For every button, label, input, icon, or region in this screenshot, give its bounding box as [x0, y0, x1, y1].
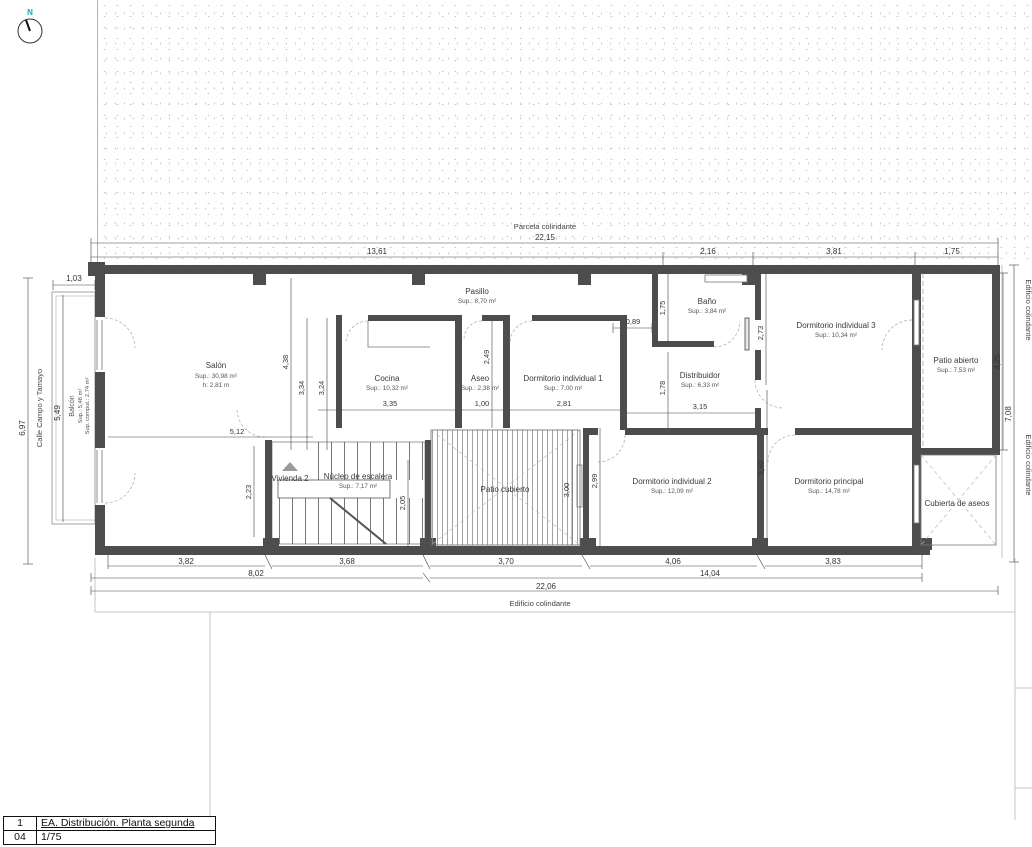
dim-top-2: 2,16 [700, 247, 716, 256]
room-area-balcon: Sup.: 5,48 m² [78, 389, 84, 424]
dim-bottom-sub-2: 14,04 [700, 569, 721, 578]
dim-cocina-w: 3,35 [383, 399, 397, 408]
dim-v273: 2,73 [756, 326, 765, 340]
room-label-distribuidor: Distribuidor [680, 371, 721, 380]
room-area-dormitorio1: Sup.: 7,00 m² [544, 385, 582, 392]
dim-left-2: 6,97 [18, 420, 27, 436]
label-edificio-colindante-bottom: Edificio colindante [509, 599, 570, 608]
room-label-dormitorio2: Dormitorio individual 2 [632, 477, 712, 486]
dim-right-1: 4,25 [993, 354, 1002, 370]
room-area-salon: Sup.: 30,98 m² [195, 373, 237, 380]
room-area-cocina: Sup.: 10,32 m² [366, 385, 408, 392]
room-label-principal: Dormitorio principal [795, 477, 864, 486]
dim-top-overall: 22,15 [535, 233, 556, 242]
room-label-pasillo: Pasillo [465, 287, 489, 296]
dim-top-1: 13,61 [367, 247, 388, 256]
dim-bottom-3: 3,70 [498, 557, 514, 566]
room-label-nucleo: Núcleo de escalera [324, 472, 393, 481]
dim-v324: 3,24 [317, 381, 326, 395]
label-parcela-colindante: Parcela colindante [514, 222, 576, 231]
dim-v249: 2,49 [482, 350, 491, 364]
entry-marker-icon [282, 462, 298, 471]
dim-v389: 3,89 [757, 461, 766, 475]
room-area-bano: Sup.: 3,84 m² [688, 308, 726, 315]
room-label-patio-cubierto: Patio cubierto [481, 485, 530, 494]
room-area-principal: Sup.: 14,78 m² [808, 488, 850, 495]
room-label-bano: Baño [698, 297, 717, 306]
north-arrow-icon: N [18, 8, 42, 43]
north-label: N [27, 8, 33, 17]
drawing-scale: 1/75 [37, 831, 216, 845]
title-block: 1 EA. Distribución. Planta segunda 04 1/… [3, 816, 216, 845]
label-street: Calle Campo y Tamayo [35, 369, 44, 447]
dim-distrib-w: 3,15 [693, 402, 707, 411]
dim-right-2: 7,08 [1004, 406, 1013, 422]
label-edificio-colindante-right-b: Edificio colindante [1024, 434, 1032, 495]
room-area-pasillo: Sup.: 8,70 m² [458, 298, 496, 305]
dim-aseo-w: 1,00 [475, 399, 489, 408]
dim-bottom-4: 4,06 [665, 557, 681, 566]
sheet-number: 1 [4, 817, 37, 831]
room-label-dormitorio3: Dormitorio individual 3 [796, 321, 876, 330]
room-label-dormitorio1: Dormitorio individual 1 [523, 374, 603, 383]
room-height-salon: h: 2,81 m [203, 382, 230, 389]
dim-bottom-2: 3,68 [339, 557, 355, 566]
dim-v438: 4,38 [281, 355, 290, 369]
drawing-title: EA. Distribución. Planta segunda [37, 817, 216, 831]
floor-plan-sheet: N [0, 0, 1032, 847]
dim-left-3: 5,49 [53, 405, 62, 421]
dim-v205: 2,05 [398, 496, 407, 510]
room-area-aseo: Sup.: 2,38 m² [461, 385, 499, 392]
dim-salon-w: 5,12 [230, 427, 244, 436]
dim-v175: 1,75 [658, 301, 667, 315]
dim-bottom-overall: 22,06 [536, 582, 557, 591]
room-label-cocina: Cocina [375, 374, 400, 383]
kitchen-counter [368, 321, 430, 347]
dim-v334: 3,34 [297, 381, 306, 395]
stairs [272, 442, 425, 544]
room-area-dormitorio3: Sup.: 10,34 m² [815, 332, 857, 339]
room-label-aseo: Aseo [471, 374, 490, 383]
drawing-code: 04 [4, 831, 37, 845]
dim-bano-off: 0,89 [626, 317, 640, 326]
dim-top-3: 3,81 [826, 247, 842, 256]
dim-left-1: 1,03 [66, 274, 82, 283]
room-label-salon: Salón [206, 361, 226, 370]
room-label-cubierta: Cubierta de aseos [925, 499, 990, 508]
room-area-patio-abierto: Sup.: 7,53 m² [937, 367, 975, 374]
dim-v223: 2,23 [244, 485, 253, 499]
dim-dorm1-w: 2,81 [557, 399, 571, 408]
dim-bottom-sub-1: 8,02 [248, 569, 264, 578]
room-label-patio-abierto: Patio abierto [934, 356, 979, 365]
floor-plan-drawing: N [0, 0, 1032, 847]
room-computed-balcon: Sup. comput.: 2,74 m² [85, 377, 91, 434]
room-label-vivienda2: Vivienda 2 [271, 474, 309, 483]
dim-bottom-1: 3,82 [178, 557, 194, 566]
dim-v178: 1,78 [658, 381, 667, 395]
label-edificio-colindante-right-a: Edificio colindante [1024, 279, 1032, 340]
dim-top-4: 1,75 [944, 247, 960, 256]
room-area-nucleo: Sup.: 7,17 m² [339, 483, 377, 490]
room-area-dormitorio2: Sup.: 12,09 m² [651, 488, 693, 495]
dim-v299: 2,99 [590, 474, 599, 488]
dim-v300: 3,00 [562, 483, 571, 497]
room-label-balcon: Balcón [69, 395, 76, 417]
dim-bottom-5: 3,83 [825, 557, 841, 566]
room-area-distribuidor: Sup.: 6,33 m² [681, 382, 719, 389]
